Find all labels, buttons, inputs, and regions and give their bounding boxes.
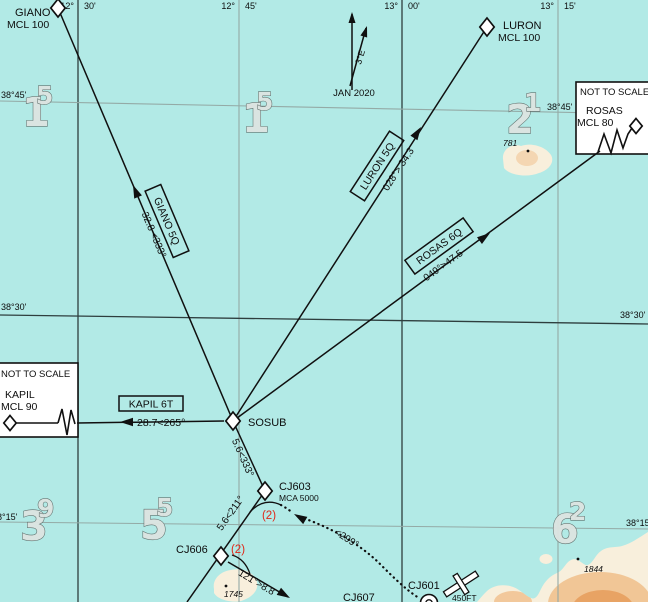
lat-label: 38°30' [1, 302, 27, 312]
islet [540, 554, 553, 564]
airport-elevation: 450FT [452, 593, 477, 602]
spot-elev-1844: 1844 [584, 564, 603, 574]
giano-level: MCL 100 [7, 19, 49, 31]
sosub-name: SOSUB [248, 417, 287, 429]
cj606-name: CJ606 [176, 544, 208, 556]
lat-label: 38°15' [0, 512, 18, 522]
spot-elev-781: 781 [503, 138, 517, 148]
kapil-name: KAPIL [5, 389, 35, 401]
not-to-scale-label: NOT TO SCALE [1, 369, 70, 380]
cj603-mca: MCA 5000 [279, 493, 319, 503]
kapil-level: MCL 90 [1, 401, 38, 413]
giano-name: GIANO [15, 7, 51, 19]
mora-sup: 5 [36, 81, 53, 110]
lon-label: 45' [245, 1, 257, 11]
mora-sup: 2 [569, 497, 586, 526]
lon-label: 13° [384, 1, 398, 11]
cj607-name: CJ607 [343, 592, 375, 602]
cj601-name: CJ601 [408, 580, 440, 592]
luron-name: LURON [503, 20, 542, 32]
spot-dot-1745 [225, 585, 228, 588]
cj603-name: CJ603 [279, 481, 311, 493]
island-781-terrain [516, 150, 538, 166]
lat-label: 38°30' [620, 310, 646, 320]
spot-elev-1745: 1745 [224, 589, 243, 599]
lon-label: 13° [540, 1, 554, 11]
turn-note-2-cj606: (2) [231, 544, 245, 556]
luron-level: MCL 100 [498, 32, 540, 44]
chart-page: 12° 30' 12° 45' 13° 00' 13° 15' 38°45' 3… [0, 0, 648, 602]
lat-label: 38°45' [547, 102, 573, 112]
mora-sup: 9 [37, 494, 54, 523]
mora-sup: 5 [256, 87, 273, 116]
lon-label: 15' [564, 1, 576, 11]
not-to-scale-label: NOT TO SCALE [580, 87, 648, 98]
lat-label: 38°15' [626, 518, 648, 528]
designator-text: KAPIL 6T [129, 399, 174, 411]
spot-dot-781 [527, 150, 530, 153]
spot-dot-1844 [577, 558, 580, 561]
lon-label: 30' [84, 1, 96, 11]
mora-sup: 5 [156, 493, 173, 522]
lon-label: 12° [221, 1, 235, 11]
variation-date: JAN 2020 [333, 88, 375, 99]
aeronautical-sid-chart: 12° 30' 12° 45' 13° 00' 13° 15' 38°45' 3… [0, 0, 648, 602]
mora-sup: 1 [524, 88, 541, 117]
lon-label: 00' [408, 1, 420, 11]
rosas-name: ROSAS [586, 105, 623, 117]
turn-note-2-cj603: (2) [262, 510, 276, 522]
dist-brg-kapil: 28.7<265° [137, 417, 185, 429]
rosas-level: MCL 80 [577, 117, 614, 129]
